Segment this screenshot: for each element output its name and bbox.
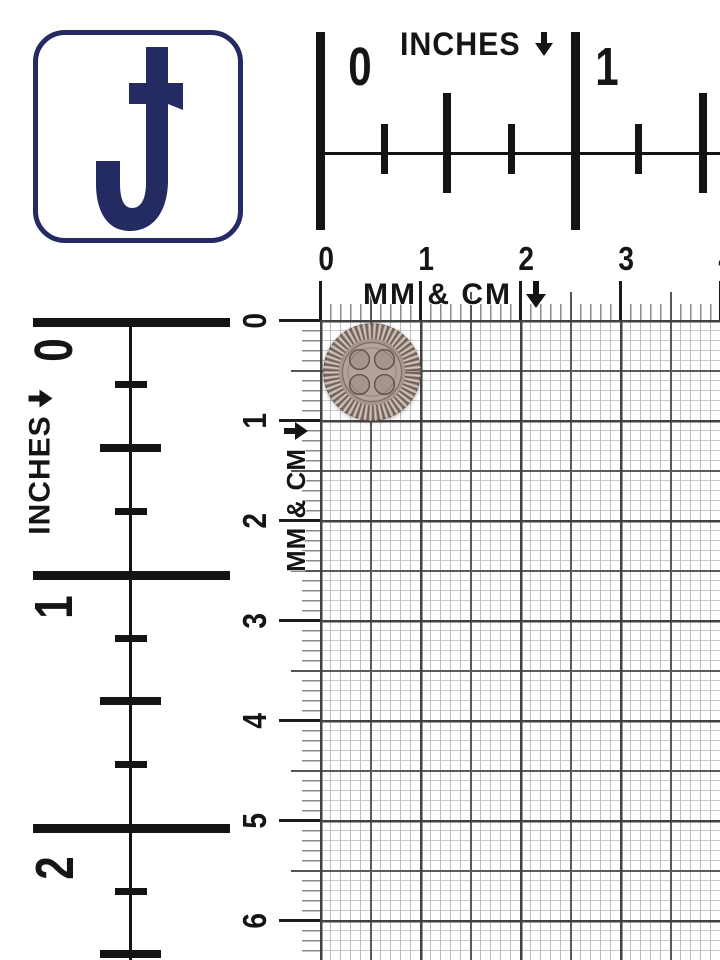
top-inch-tick-quarter <box>508 124 515 174</box>
button-photo <box>323 323 421 421</box>
top-inch-tick-quarter <box>381 124 388 174</box>
left-inch-tick-quarter <box>115 635 147 642</box>
left-inch-tick-quarter <box>115 888 147 895</box>
top-metric-number-4: 4 <box>709 241 720 275</box>
top-metric-number-3: 3 <box>609 241 643 275</box>
measurement-sheet: { "colors": { "navy": "#242b63", "ink": … <box>0 0 720 960</box>
left-metric-number-0: 0 <box>237 304 271 338</box>
left-inch-label: INCHES <box>24 380 58 545</box>
top-metric-number-1: 1 <box>409 241 443 275</box>
left-metric-label-text: MM & CM <box>281 448 312 572</box>
top-inch-tick-1 <box>571 32 580 230</box>
down-arrow-icon <box>28 389 53 407</box>
top-metric-label-text: MM & CM <box>363 278 512 312</box>
left-inch-tick-2 <box>33 824 230 833</box>
brand-logo-j-icon <box>90 40 190 240</box>
down-arrow-icon <box>535 32 553 57</box>
top-metric-number-2: 2 <box>509 241 543 275</box>
left-inch-tick-half <box>100 444 161 452</box>
left-metric-number-3: 3 <box>237 604 271 638</box>
top-inch-tick-0 <box>316 32 325 230</box>
left-inch-tick-half <box>100 950 161 958</box>
top-metric-label: MM & CM <box>363 280 546 310</box>
left-inch-number-0: 0 <box>29 323 79 377</box>
top-inch-tick-half <box>699 93 707 193</box>
left-metric-number-6: 6 <box>237 904 271 938</box>
down-arrow-icon <box>284 422 309 440</box>
top-inch-ruler-line <box>320 152 720 155</box>
down-arrow-icon <box>526 281 546 309</box>
top-inch-number-1: 1 <box>582 40 632 94</box>
left-inch-number-2: 2 <box>30 841 80 895</box>
top-metric-number-0: 0 <box>309 241 343 275</box>
left-inch-tick-1 <box>33 571 230 580</box>
left-metric-label: MM & CM <box>281 412 311 582</box>
left-inch-tick-quarter <box>115 508 147 515</box>
top-inch-label-text: INCHES <box>400 26 521 63</box>
left-metric-number-2: 2 <box>237 504 271 538</box>
left-inch-tick-quarter <box>115 761 147 768</box>
left-metric-number-1: 1 <box>237 404 271 438</box>
top-inch-number-0: 0 <box>335 40 385 94</box>
left-inch-label-text: INCHES <box>24 415 58 534</box>
left-metric-number-5: 5 <box>237 804 271 838</box>
left-inch-tick-quarter <box>115 381 147 388</box>
top-inch-label: INCHES <box>400 28 553 60</box>
top-inch-tick-half <box>443 93 451 193</box>
button-face <box>343 343 402 402</box>
top-inch-tick-quarter <box>635 124 642 174</box>
left-metric-number-4: 4 <box>237 704 271 738</box>
left-inch-tick-half <box>100 697 161 705</box>
left-inch-number-1: 1 <box>29 580 79 634</box>
